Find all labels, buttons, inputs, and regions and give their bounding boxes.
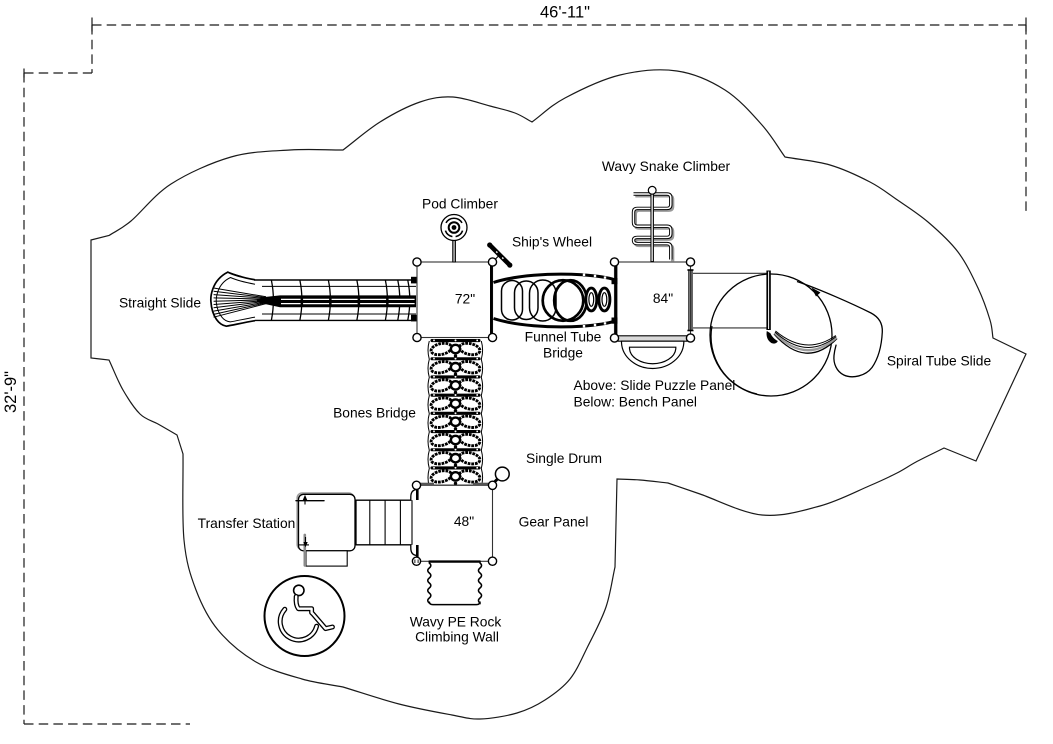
svg-text:Gear Panel: Gear Panel [519,515,589,530]
svg-text:Straight Slide: Straight Slide [119,296,201,311]
svg-text:46'-11": 46'-11" [540,4,590,22]
svg-text:Above: Slide Puzzle Panel: Above: Slide Puzzle Panel [574,378,736,393]
svg-text:Bridge: Bridge [543,346,583,361]
svg-text:Wavy PE Rock: Wavy PE Rock [410,615,502,630]
svg-text:Funnel Tube: Funnel Tube [525,330,602,345]
svg-text:Below: Bench Panel: Below: Bench Panel [574,394,698,409]
svg-text:48": 48" [454,514,474,529]
svg-text:Ship's Wheel: Ship's Wheel [512,235,592,250]
svg-text:Climbing Wall: Climbing Wall [415,630,499,645]
svg-text:32'-9": 32'-9" [2,371,20,413]
svg-text:Bones Bridge: Bones Bridge [333,406,416,421]
svg-text:72": 72" [455,292,475,307]
svg-text:Single Drum: Single Drum [526,451,602,466]
svg-text:Wavy Snake Climber: Wavy Snake Climber [602,159,731,174]
svg-text:Spiral Tube Slide: Spiral Tube Slide [887,354,992,369]
svg-text:84": 84" [653,291,673,306]
svg-text:Transfer Station: Transfer Station [198,516,296,531]
svg-text:Pod Climber: Pod Climber [422,197,498,212]
